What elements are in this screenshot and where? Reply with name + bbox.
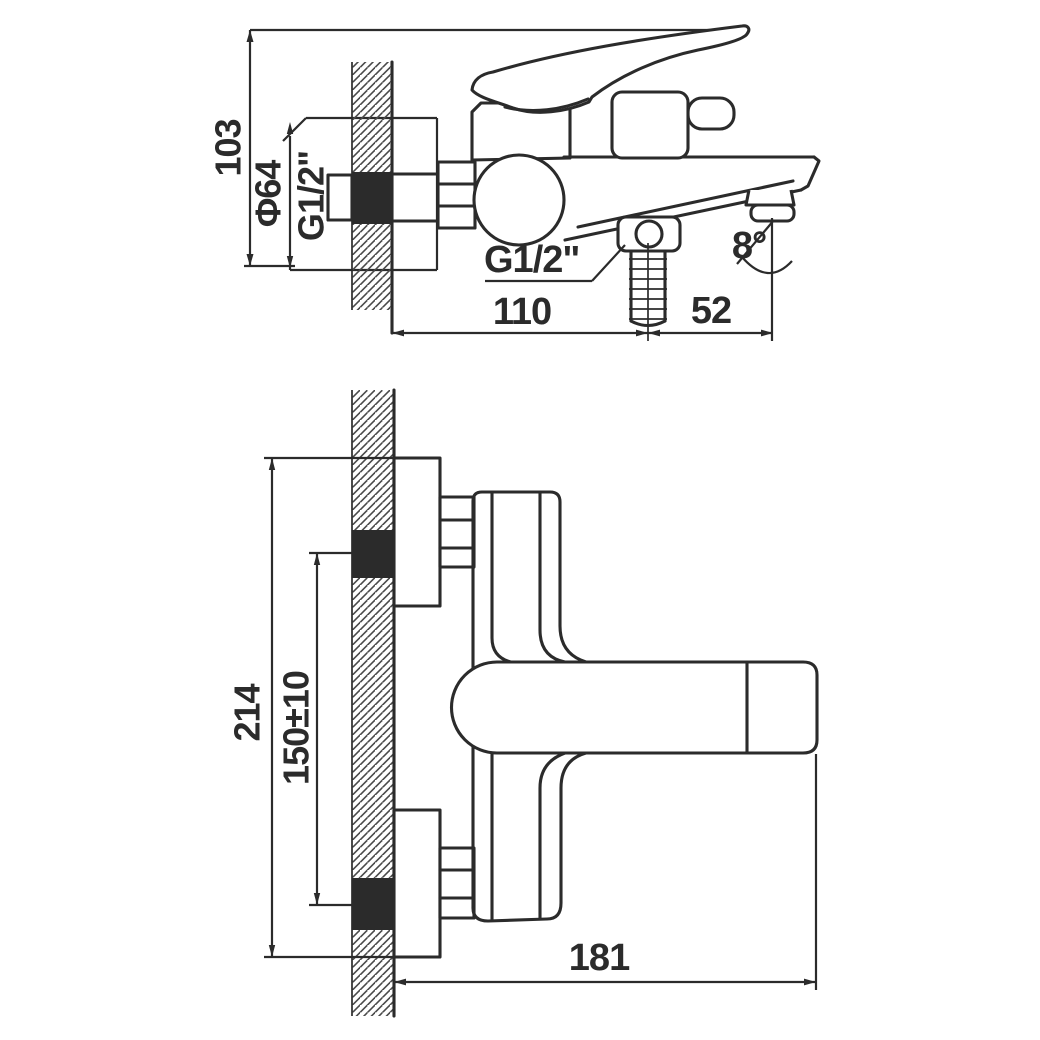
dim-angle-label: 8° <box>732 225 766 267</box>
spout-front <box>452 662 817 753</box>
top-view: 103 Φ64 G1/2" <box>208 26 819 341</box>
lower-supply-hole <box>352 878 394 930</box>
upper-escutcheon <box>394 458 440 606</box>
wall-supply-connection <box>328 162 475 228</box>
dim-214-label: 214 <box>227 683 268 741</box>
upper-supply-hole <box>352 530 394 578</box>
faucet-dimension-drawing: 103 Φ64 G1/2" <box>0 0 1040 1040</box>
front-view: 214 150±10 181 <box>227 390 817 1016</box>
wall-thread-label: G1/2" <box>291 151 332 241</box>
dim-spout-angle: 8° <box>732 218 792 341</box>
dim-110-52: 110 52 <box>392 290 773 336</box>
dim-110-label: 110 <box>493 291 551 333</box>
dim-52-label: 52 <box>691 290 731 332</box>
lower-escutcheon <box>394 810 440 957</box>
spout-tip <box>801 157 819 190</box>
shower-thread-callout: G1/2" <box>484 239 625 281</box>
diverter-rod <box>688 98 734 129</box>
mixer-body-front <box>452 492 817 921</box>
dim-150: 150±10 <box>276 553 352 905</box>
aerator-collar <box>746 190 794 205</box>
eccentric-nut <box>438 162 475 228</box>
shower-thread-label: G1/2" <box>484 239 579 281</box>
dim-150-label: 150±10 <box>276 671 317 785</box>
dim-phi64-label: Φ64 <box>248 160 289 228</box>
upper-connection-nut <box>440 497 474 567</box>
cartridge-dome <box>474 155 564 245</box>
technical-drawing-page: 103 Φ64 G1/2" <box>0 0 1040 1040</box>
diverter-knob <box>612 92 688 158</box>
lower-connection-nut <box>440 848 474 918</box>
faucet-body-top <box>472 26 819 245</box>
shower-outlet <box>618 217 680 341</box>
dim-181-label: 181 <box>569 937 630 979</box>
dim-103-label: 103 <box>208 119 249 176</box>
